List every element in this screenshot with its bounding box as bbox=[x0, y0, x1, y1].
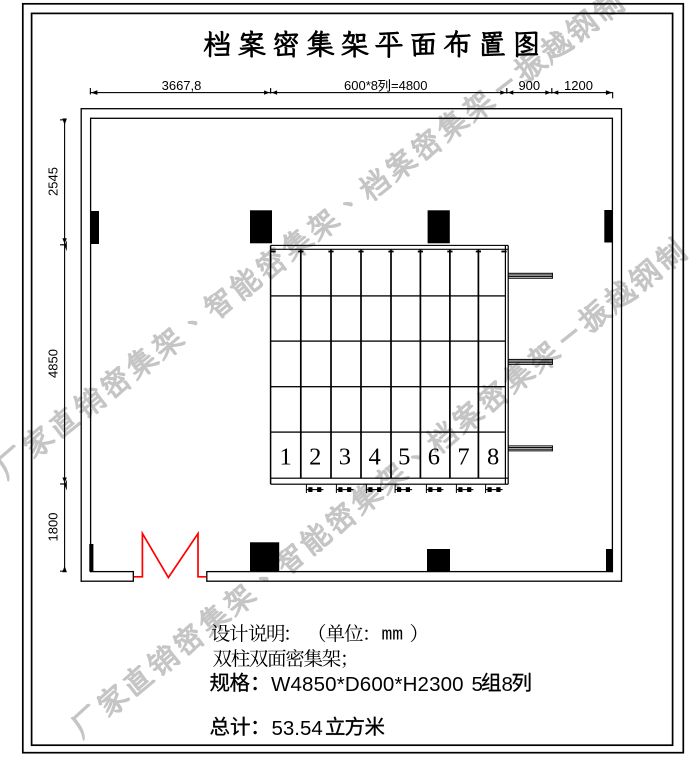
svg-text:1800: 1800 bbox=[46, 513, 61, 542]
svg-text:8: 8 bbox=[487, 443, 499, 470]
svg-text:8: 8 bbox=[502, 673, 513, 696]
svg-text:3667,8: 3667,8 bbox=[162, 78, 202, 93]
svg-text:=4800: =4800 bbox=[391, 78, 428, 93]
svg-text:6: 6 bbox=[428, 443, 440, 470]
svg-text:3: 3 bbox=[339, 443, 351, 470]
svg-text:1200: 1200 bbox=[564, 78, 593, 93]
svg-text:53.54: 53.54 bbox=[272, 717, 323, 740]
svg-text:5: 5 bbox=[472, 673, 483, 696]
svg-text:2: 2 bbox=[309, 443, 321, 470]
svg-text:900: 900 bbox=[518, 78, 540, 93]
svg-text:mm: mm bbox=[382, 626, 404, 646]
svg-text:W4850*D600*H2300: W4850*D600*H2300 bbox=[271, 673, 464, 696]
svg-text:4850: 4850 bbox=[46, 349, 61, 378]
svg-text:7: 7 bbox=[457, 443, 469, 470]
svg-text:5: 5 bbox=[398, 443, 410, 470]
svg-text:2545: 2545 bbox=[46, 167, 61, 196]
svg-text:1: 1 bbox=[279, 443, 291, 470]
svg-text:4: 4 bbox=[368, 443, 380, 470]
svg-text:600*8: 600*8 bbox=[344, 78, 378, 93]
